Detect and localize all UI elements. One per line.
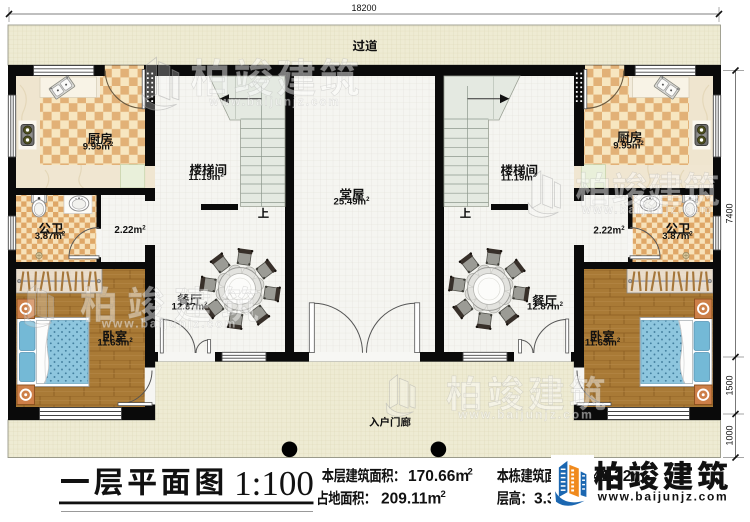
svg-text:12.87m2: 12.87m2 xyxy=(527,302,564,313)
svg-text:209.11m: 209.11m xyxy=(381,491,441,508)
svg-text:2: 2 xyxy=(441,489,446,500)
svg-text:1000: 1000 xyxy=(725,425,735,445)
svg-text:1500: 1500 xyxy=(725,375,735,395)
svg-text:2: 2 xyxy=(468,467,473,478)
svg-text:www.baijunjz.com: www.baijunjz.com xyxy=(581,205,713,217)
svg-text:2.22m2: 2.22m2 xyxy=(593,225,625,236)
svg-text:2.22m2: 2.22m2 xyxy=(114,225,146,236)
svg-text:3.87m2: 3.87m2 xyxy=(35,231,66,242)
svg-text:9.95m2: 9.95m2 xyxy=(83,142,114,153)
svg-text:3.87m2: 3.87m2 xyxy=(662,231,693,242)
svg-text:11.19m2: 11.19m2 xyxy=(501,173,537,184)
svg-text:www.baijunjz.com: www.baijunjz.com xyxy=(597,490,729,504)
svg-text:11.63m2: 11.63m2 xyxy=(585,338,621,349)
svg-text:18200: 18200 xyxy=(351,3,376,13)
svg-text:www.baijunjz.com: www.baijunjz.com xyxy=(101,317,238,331)
svg-text:1:100: 1:100 xyxy=(234,464,314,503)
svg-text:170.66m: 170.66m xyxy=(408,468,469,485)
svg-text:www.baijunjz.com: www.baijunjz.com xyxy=(208,97,340,109)
svg-text:11.19m2: 11.19m2 xyxy=(188,172,224,183)
svg-text:25.49m2: 25.49m2 xyxy=(334,197,371,208)
svg-text:www.baijunjz.com: www.baijunjz.com xyxy=(457,408,594,422)
svg-text:9.95m2: 9.95m2 xyxy=(613,141,644,152)
svg-text:7400: 7400 xyxy=(725,203,735,223)
svg-text:11.63m2: 11.63m2 xyxy=(97,338,133,349)
